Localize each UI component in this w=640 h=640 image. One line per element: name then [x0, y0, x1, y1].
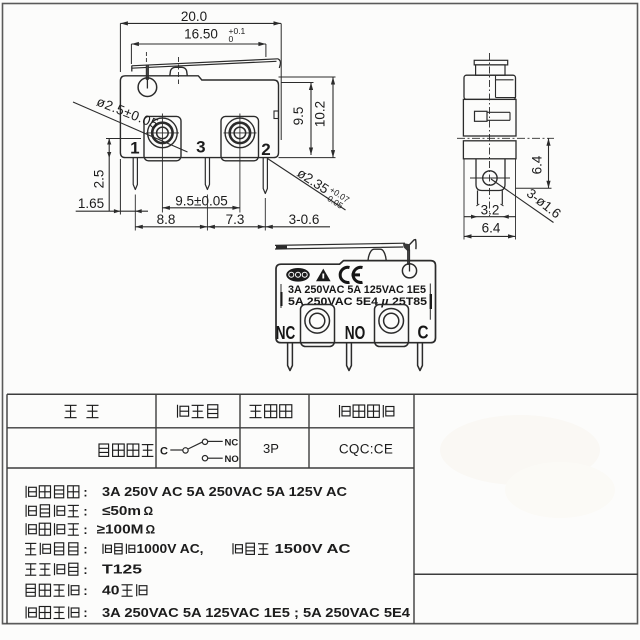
- svg-text:3P: 3P: [263, 441, 279, 456]
- svg-text:T125: T125: [102, 562, 142, 577]
- svg-text:40: 40: [102, 583, 120, 598]
- svg-text:3.2: 3.2: [481, 203, 500, 218]
- svg-text::: :: [83, 584, 87, 598]
- svg-text:1000V AC,: 1000V AC,: [137, 541, 204, 556]
- svg-text:3A 250VAC 5A 125VAC 1E5: 3A 250VAC 5A 125VAC 1E5: [288, 284, 427, 296]
- svg-text:3-0.6: 3-0.6: [289, 212, 320, 227]
- svg-text:C: C: [160, 446, 168, 458]
- svg-text:≥100M: ≥100M: [97, 522, 144, 537]
- svg-text:Ω: Ω: [146, 523, 156, 537]
- svg-text:9.5±0.05: 9.5±0.05: [175, 194, 227, 209]
- svg-text:2: 2: [261, 140, 270, 159]
- svg-text::: :: [83, 606, 87, 620]
- svg-text::: :: [83, 504, 87, 518]
- svg-text:NO: NO: [345, 322, 366, 343]
- svg-text:2.5: 2.5: [92, 170, 107, 189]
- svg-text:3A 250VAC 5A 125VAC 1E5 ; 5A 2: 3A 250VAC 5A 125VAC 1E5 ; 5A 250VAC 5E4: [102, 605, 411, 620]
- svg-text:6.4: 6.4: [482, 221, 501, 236]
- svg-text:16.50: 16.50: [184, 27, 218, 42]
- svg-text:NO: NO: [225, 454, 239, 465]
- svg-text:NC: NC: [225, 437, 239, 448]
- svg-text:0: 0: [229, 34, 234, 44]
- svg-text::: :: [83, 523, 87, 537]
- svg-text:CQC:CE: CQC:CE: [339, 442, 393, 457]
- svg-text:8.8: 8.8: [157, 212, 176, 227]
- svg-text:9.5: 9.5: [291, 107, 306, 126]
- svg-text:C: C: [418, 321, 429, 342]
- svg-text::: :: [83, 485, 87, 499]
- svg-text:Ω: Ω: [144, 504, 154, 518]
- svg-text::: :: [83, 563, 87, 577]
- svg-text::: :: [83, 542, 87, 556]
- svg-text:≤50m: ≤50m: [102, 503, 141, 518]
- svg-text:3A 250V AC 5A 250VAC 5A 125V A: 3A 250V AC 5A 250VAC 5A 125V AC: [102, 484, 348, 499]
- svg-text:6.4: 6.4: [530, 155, 545, 174]
- svg-text:NC: NC: [276, 322, 296, 343]
- svg-text:3: 3: [196, 138, 205, 157]
- svg-text:1: 1: [130, 139, 139, 158]
- svg-text:10.2: 10.2: [313, 101, 328, 127]
- svg-text:20.0: 20.0: [181, 9, 207, 24]
- svg-text:1500V AC: 1500V AC: [275, 541, 352, 556]
- svg-text:7.3: 7.3: [226, 212, 245, 227]
- svg-text:1.65: 1.65: [78, 196, 104, 211]
